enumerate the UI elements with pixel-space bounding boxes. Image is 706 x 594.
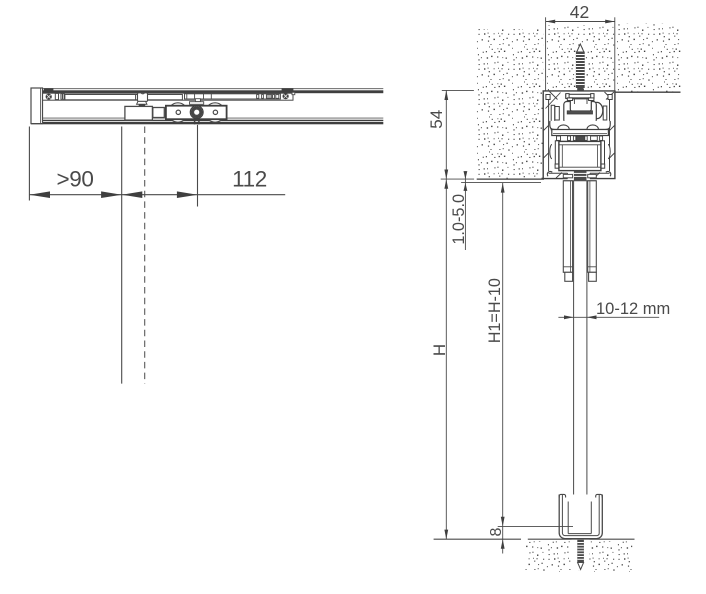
svg-text:10-12 mm: 10-12 mm	[596, 300, 670, 318]
svg-text:>90: >90	[57, 166, 94, 191]
svg-text:112: 112	[232, 166, 267, 191]
svg-text:1.0-5.0: 1.0-5.0	[450, 194, 468, 245]
svg-text:54: 54	[427, 110, 446, 129]
svg-text:H: H	[430, 344, 449, 356]
svg-text:8: 8	[488, 527, 505, 536]
svg-text:H1=H-10: H1=H-10	[486, 278, 504, 343]
svg-text:42: 42	[570, 2, 589, 22]
